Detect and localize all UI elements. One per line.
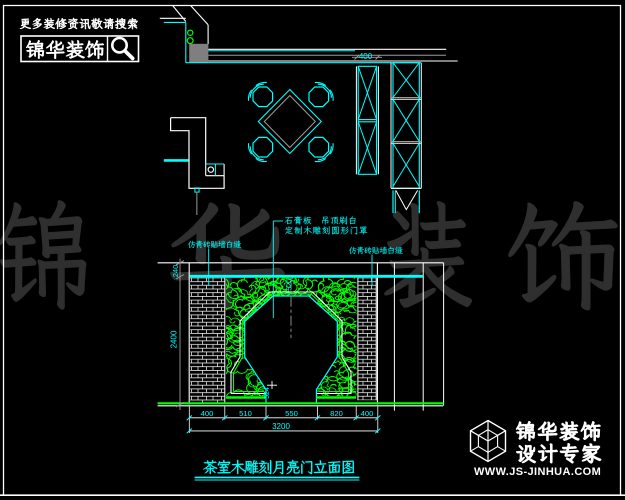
svg-text:820: 820 [330, 409, 343, 418]
svg-text:400: 400 [359, 52, 373, 61]
svg-text:510: 510 [239, 409, 252, 418]
svg-text:400: 400 [361, 409, 374, 418]
svg-text:550: 550 [285, 409, 298, 418]
svg-text:524: 524 [264, 387, 271, 399]
svg-text:WWW.JS-JINHUA.COM: WWW.JS-JINHUA.COM [474, 466, 601, 478]
svg-text:3200: 3200 [272, 422, 290, 431]
svg-text:2400: 2400 [170, 330, 179, 348]
svg-text:240: 240 [171, 265, 180, 278]
svg-text:520: 520 [287, 279, 294, 291]
svg-text:400: 400 [201, 409, 214, 418]
